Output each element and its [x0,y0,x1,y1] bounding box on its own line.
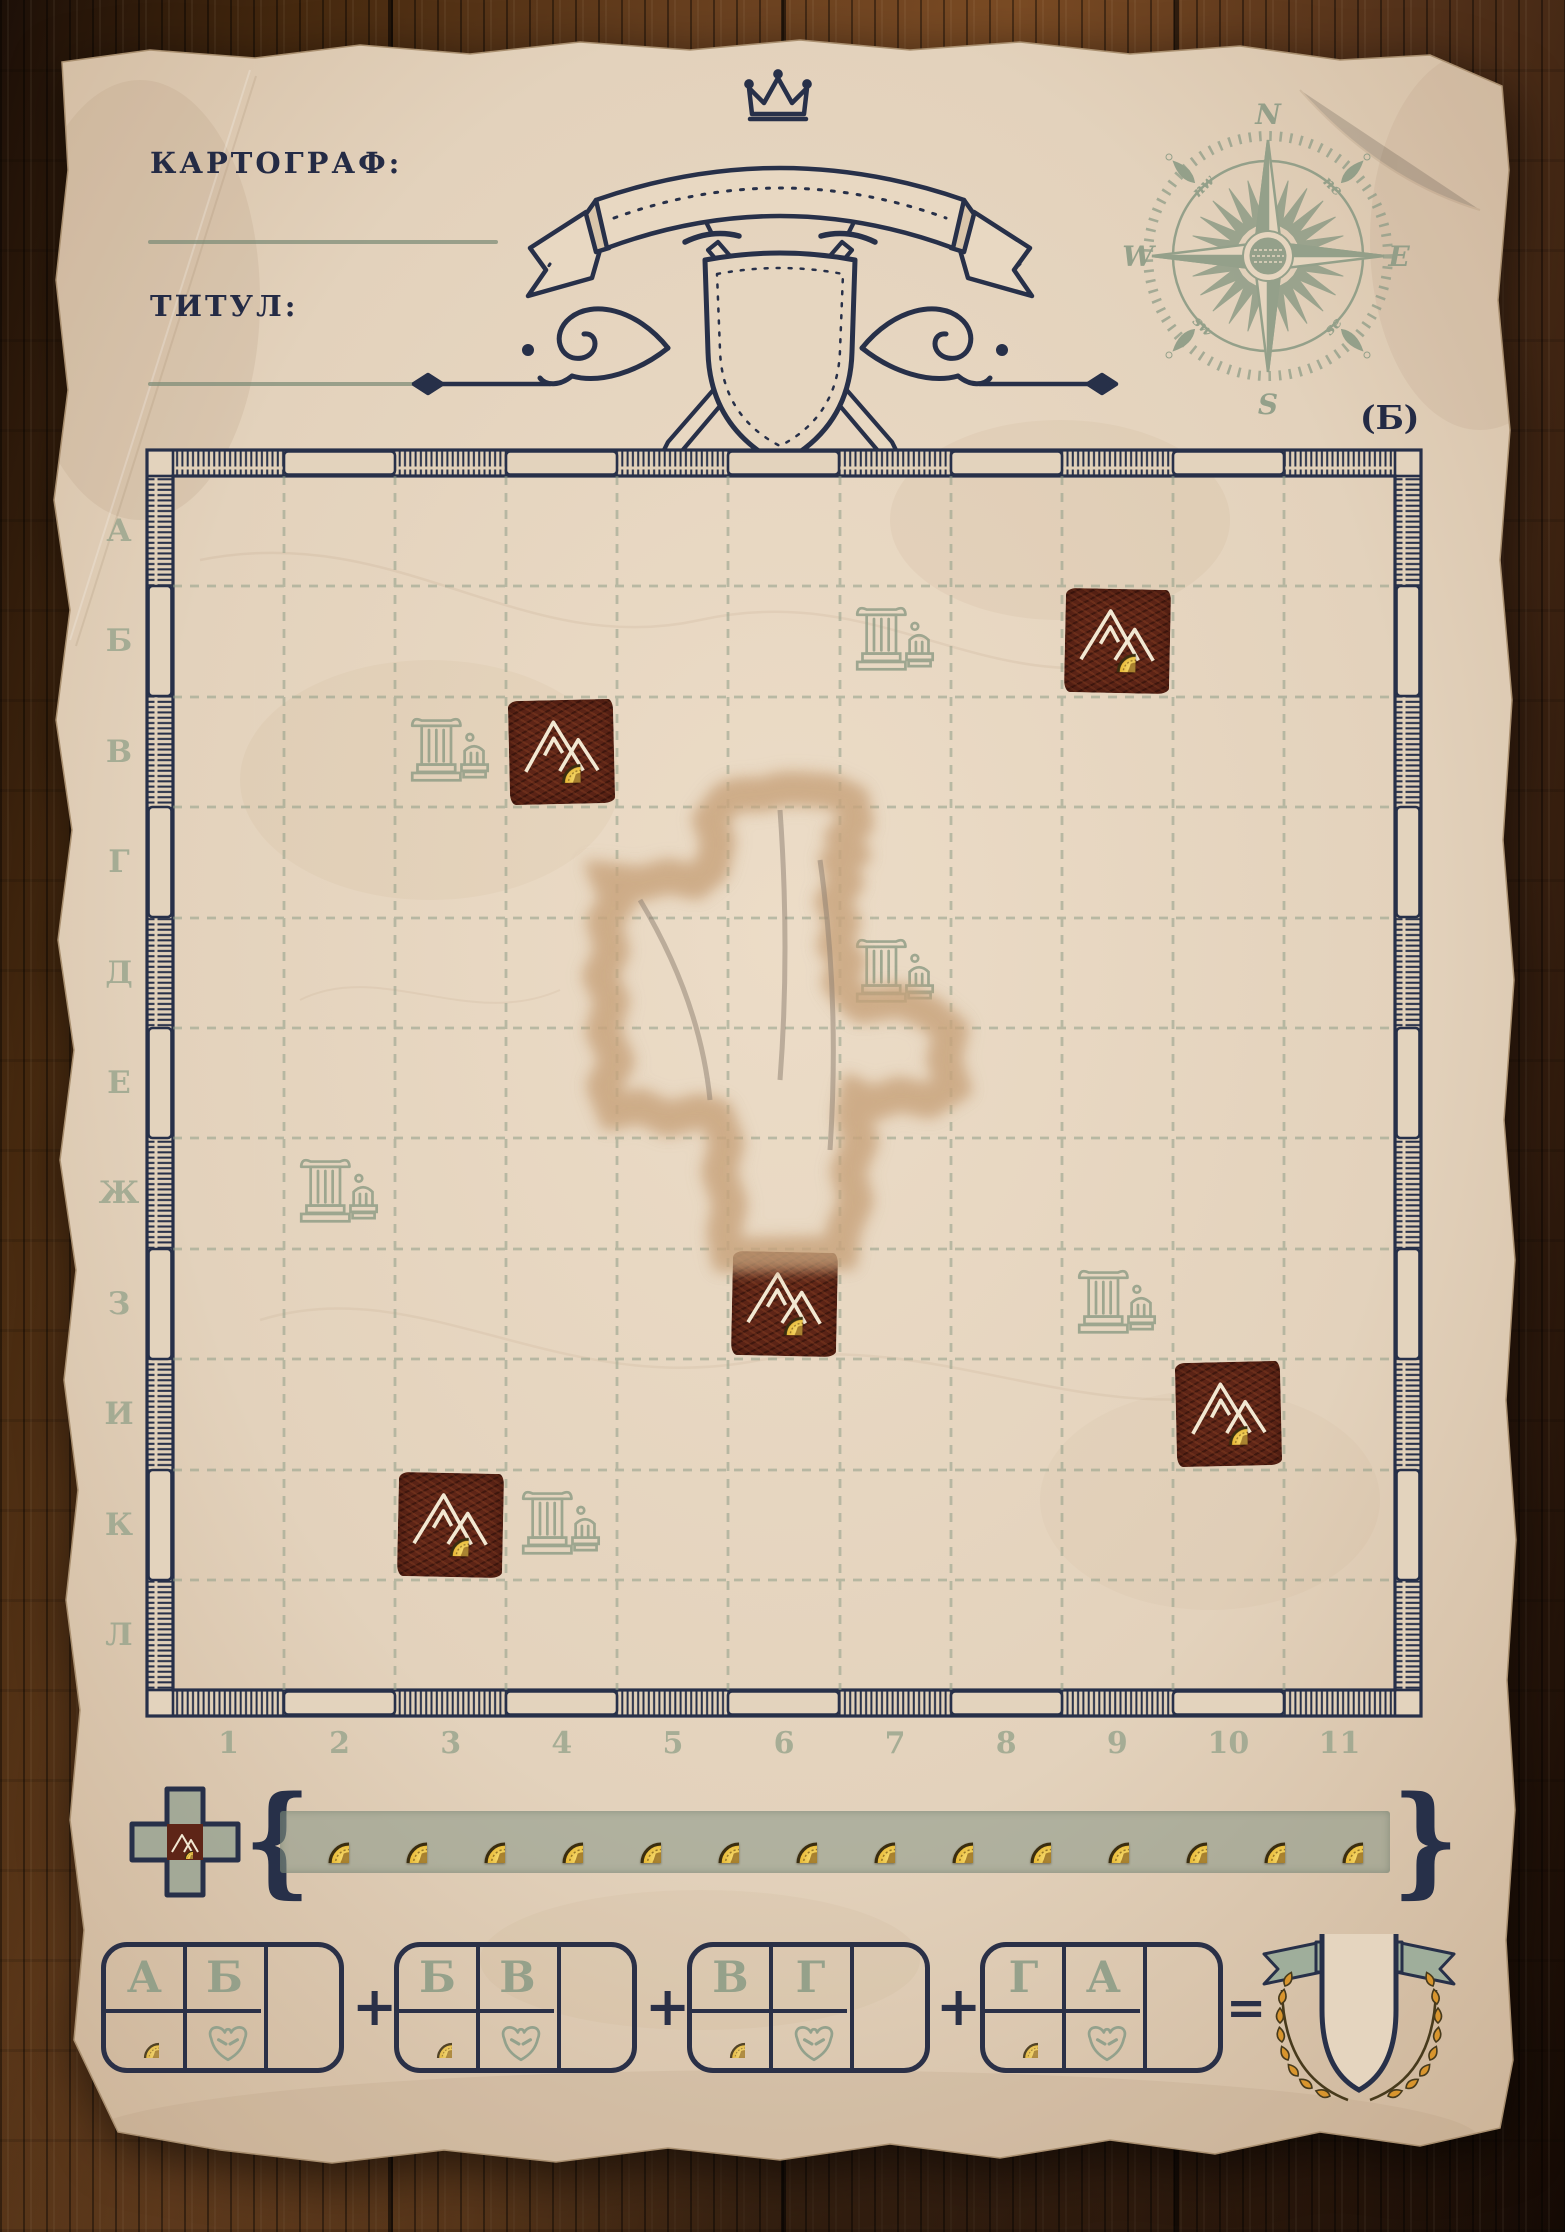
divider [985,2009,1140,2013]
divider [399,2009,554,2013]
laurel-wreath-total[interactable] [1258,1924,1460,2110]
coin-icon[interactable] [307,1821,349,1863]
coin-icon[interactable] [619,1821,661,1863]
scoring-box-3: В Г [687,1942,930,2073]
edict-letter: Б [186,1947,263,2009]
edict-letter: А [1065,1947,1142,2009]
coin-icon[interactable] [1087,1821,1129,1863]
divider [692,2009,847,2013]
scoring-box-2: Б В [394,1942,637,2073]
coin-icon[interactable] [385,1821,427,1863]
score-cell[interactable] [1143,1947,1218,2068]
score-cell[interactable] [850,1947,925,2068]
coin-icon [128,2027,159,2058]
score-cell[interactable] [557,1947,632,2068]
coin-icon[interactable] [541,1821,583,1863]
coin-icon[interactable] [853,1821,895,1863]
edict-letter: Г [772,1947,849,2009]
brace-right: } [1392,1780,1459,1900]
wasteland-cross-legend [126,1786,242,1900]
score-cell[interactable] [264,1947,339,2068]
coin-icon[interactable] [931,1821,973,1863]
monster-icon [790,2023,838,2065]
scoring-box-4: Г А [980,1942,1223,2073]
coin-icon[interactable] [1009,1821,1051,1863]
coin-icon[interactable] [775,1821,817,1863]
coin-icon[interactable] [1243,1821,1285,1863]
coin-icon[interactable] [463,1821,505,1863]
coin-icon[interactable] [697,1821,739,1863]
edict-letter: А [106,1947,183,2009]
scoring-box-1: А Б [101,1942,344,2073]
plus-operator: + [645,1974,690,2038]
plus-operator: + [936,1974,981,2038]
coin-icon[interactable] [1321,1821,1363,1863]
coin-icon [714,2027,745,2058]
edict-letter: В [692,1947,769,2009]
coin-icon [1007,2027,1038,2058]
coin-icon [421,2027,452,2058]
edict-letter: Б [399,1947,476,2009]
coin-track[interactable] [280,1811,1390,1873]
divider [106,2009,261,2013]
monster-icon [1083,2023,1131,2065]
total-shield [1322,1934,1396,2090]
coin-icon[interactable] [1165,1821,1207,1863]
monster-icon [204,2023,252,2065]
plus-operator: + [352,1974,397,2038]
edict-letter: В [479,1947,556,2009]
monster-icon [497,2023,545,2065]
cartographers-map-sheet: КАРТОГРАФ: ТИТУЛ: (Б) [0,0,1565,2232]
edict-letter: Г [985,1947,1062,2009]
